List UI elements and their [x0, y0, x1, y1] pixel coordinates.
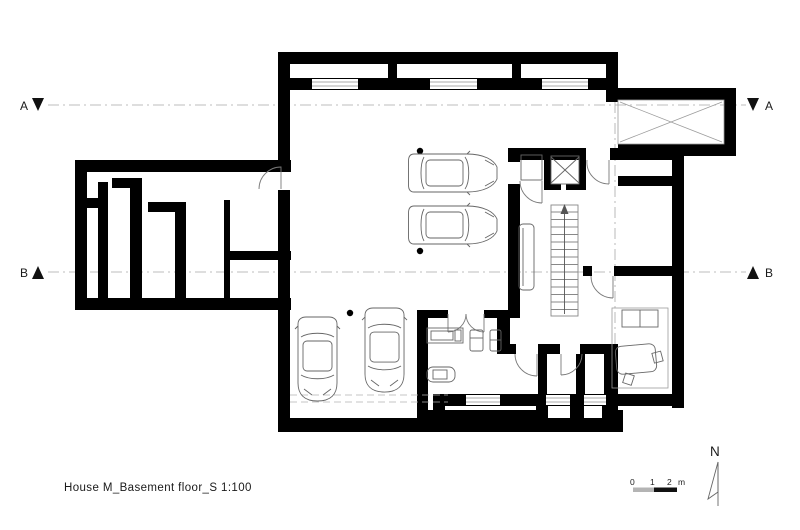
- north-needle-icon: [708, 462, 718, 499]
- section-label-a-left: A: [20, 99, 28, 113]
- section-triangle-a-left: [32, 98, 44, 111]
- scale-segment-black: [654, 488, 677, 493]
- north-arrow: N: [708, 444, 720, 506]
- drawing-title: House M_Basement floor_S 1:100: [64, 482, 252, 494]
- floor-plan-canvas: A A B B: [0, 0, 800, 530]
- scale-tick-1: 1: [650, 477, 655, 487]
- north-label: N: [710, 444, 720, 459]
- bench: [519, 224, 534, 290]
- section-triangle-a-right: [747, 98, 759, 111]
- office-desk: [615, 343, 663, 385]
- stair-direction-arrow: [561, 204, 569, 214]
- car-4: [362, 308, 407, 392]
- scale-unit: m: [678, 477, 685, 487]
- section-label-b-right: B: [765, 266, 773, 280]
- car-3: [295, 317, 340, 401]
- elevator-icon: [551, 156, 579, 184]
- window-openings: [312, 79, 606, 418]
- scale-segment-gray: [633, 488, 654, 493]
- scale-bar: 0 1 2 m: [630, 477, 685, 492]
- section-triangle-b-left: [32, 266, 44, 279]
- scale-tick-0: 0: [630, 477, 635, 487]
- structural-columns: [347, 148, 423, 316]
- void-cross-icon: [618, 100, 724, 144]
- floor-plan-page: A A B B: [0, 0, 800, 530]
- workshop-equipment: [427, 328, 501, 382]
- section-triangle-b-right: [747, 266, 759, 279]
- section-label-a-right: A: [765, 99, 773, 113]
- car-2: [409, 203, 498, 247]
- staircase-icon: [551, 204, 578, 316]
- section-label-b-left: B: [20, 266, 28, 280]
- car-1: [409, 151, 498, 195]
- scale-tick-2: 2: [667, 477, 672, 487]
